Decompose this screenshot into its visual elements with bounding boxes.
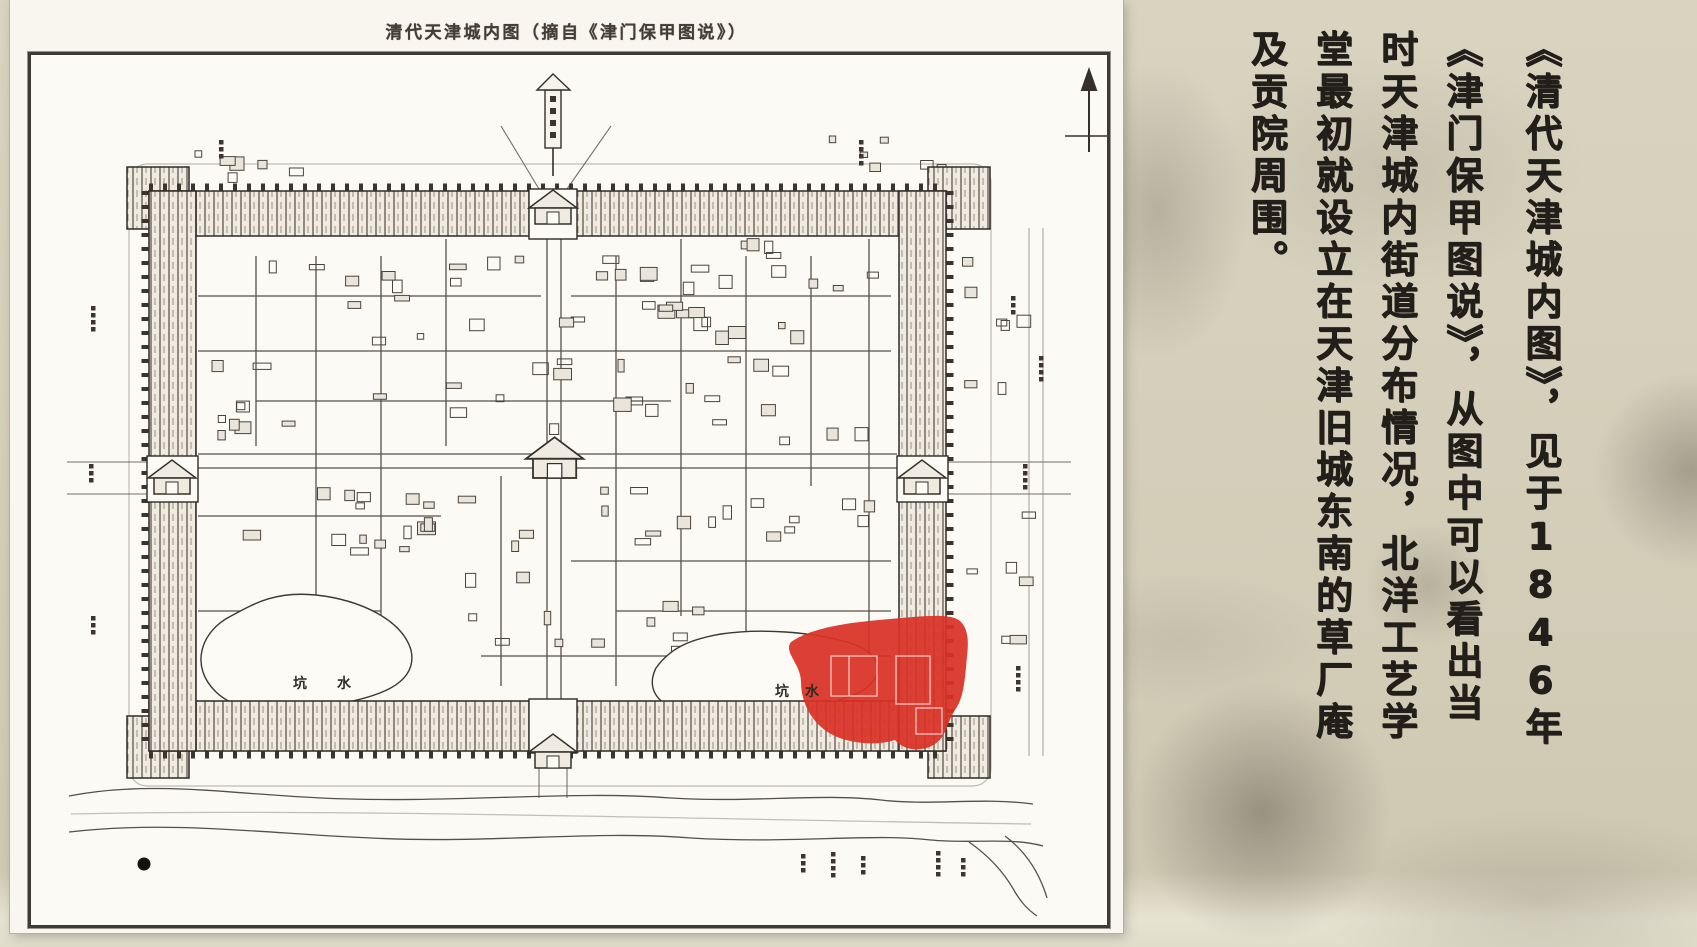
map-frame: 坑水 坑水 [28, 52, 1110, 928]
map-dot-marker [138, 858, 151, 871]
caption-column: 《清代天津城内图》，见于1846年 [1508, 30, 1675, 935]
south-pond-label: 坑水 [775, 683, 835, 700]
caption-calligraphy: 《清代天津城内图》，见于1846年 《津门保甲图说》，从图中可以看出当 时天津城… [1233, 30, 1675, 935]
drum-tower-icon [526, 437, 584, 478]
caption-column: 时天津城内街道分布情况，北洋工艺学 [1364, 30, 1429, 935]
tianjin-city-map: 坑水 坑水 [31, 55, 1107, 925]
north-banner-tower [537, 74, 570, 176]
north-arrow-icon [1065, 70, 1107, 152]
map-title: 清代天津城内图（摘自《津门保甲图说》） [10, 18, 1123, 43]
map-panel: 清代天津城内图（摘自《津门保甲图说》） [10, 0, 1123, 933]
caption-column: 堂最初就设立在天津旧城东南的草厂庵 [1299, 30, 1364, 935]
page: { "map_panel": { "title": "清代天津城内图（摘自《津门… [0, 0, 1697, 947]
west-pond [201, 594, 412, 711]
caption-column: 《津门保甲图说》，从图中可以看出当 [1429, 30, 1508, 935]
caption-column: 及贡院周围。 [1233, 30, 1298, 935]
west-pond-label: 坑水 [293, 675, 381, 692]
river [69, 789, 1047, 916]
